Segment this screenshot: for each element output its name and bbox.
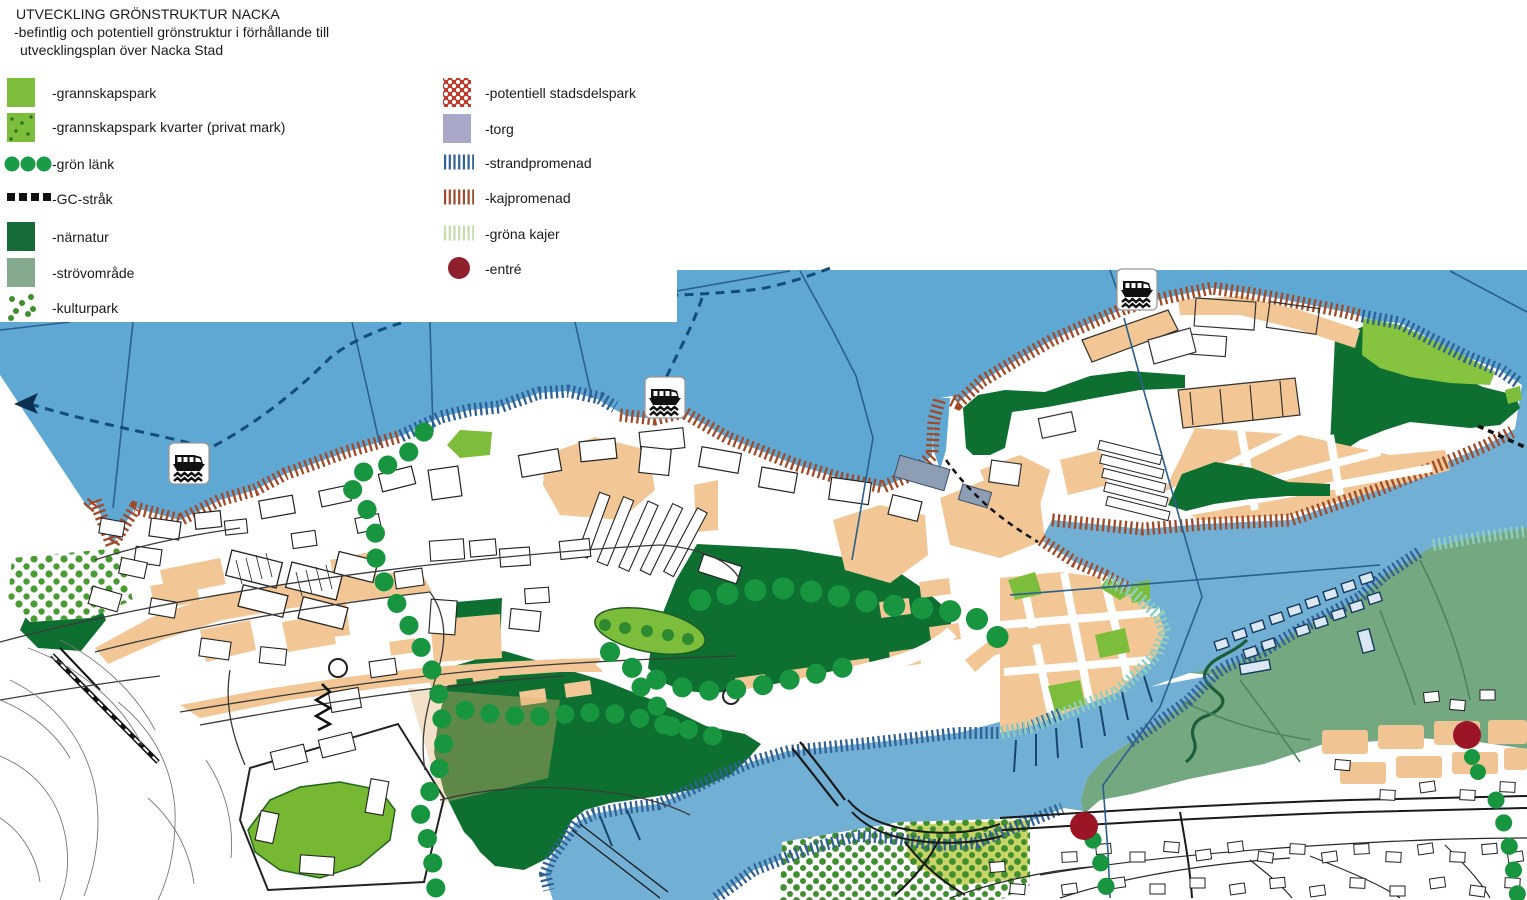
svg-text:-strövområde: -strövområde: [52, 265, 135, 281]
svg-text:-närnatur: -närnatur: [52, 229, 109, 245]
svg-text:-grannskapspark kvarter (priva: -grannskapspark kvarter (privat mark): [52, 119, 285, 135]
svg-text:-torg: -torg: [485, 121, 514, 137]
svg-text:-entré: -entré: [485, 261, 522, 277]
svg-text:-grön länk: -grön länk: [52, 156, 115, 172]
svg-text:UTVECKLING GRÖNSTRUKTUR NACKA: UTVECKLING GRÖNSTRUKTUR NACKA: [16, 5, 280, 22]
svg-text:-gröna kajer: -gröna kajer: [485, 226, 560, 242]
svg-text:-befintlig och potentiell grön: -befintlig och potentiell grönstruktur i…: [14, 24, 329, 40]
svg-text:-GC-stråk: -GC-stråk: [52, 191, 114, 207]
svg-text:-grannskapspark: -grannskapspark: [52, 85, 157, 101]
svg-text:-kajpromenad: -kajpromenad: [485, 190, 571, 206]
svg-text:utvecklingsplan över Nacka Sta: utvecklingsplan över Nacka Stad: [20, 42, 223, 58]
svg-text:-kulturpark: -kulturpark: [52, 300, 119, 316]
svg-text:-strandpromenad: -strandpromenad: [485, 155, 592, 171]
svg-text:-potentiell stadsdelspark: -potentiell stadsdelspark: [485, 85, 637, 101]
